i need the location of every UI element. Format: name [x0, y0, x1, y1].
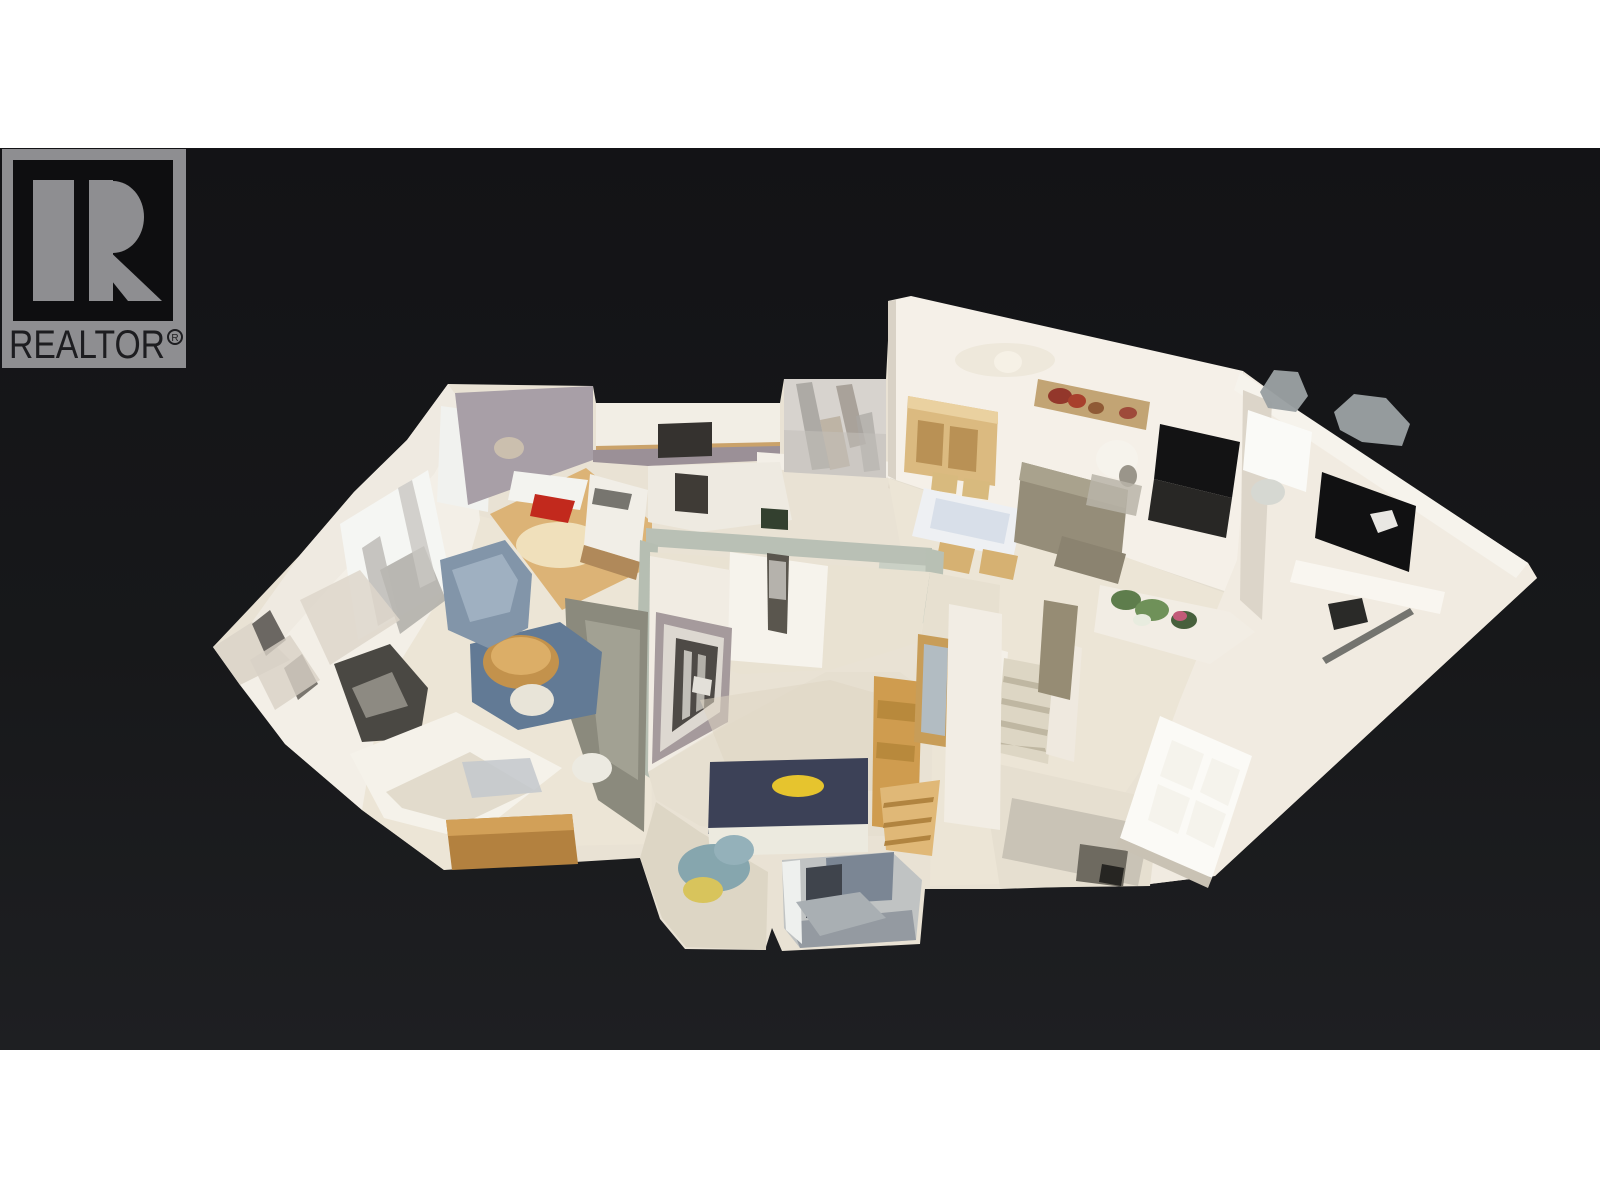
svg-text:REALTOR: REALTOR: [9, 323, 165, 367]
svg-text:R: R: [171, 333, 178, 344]
